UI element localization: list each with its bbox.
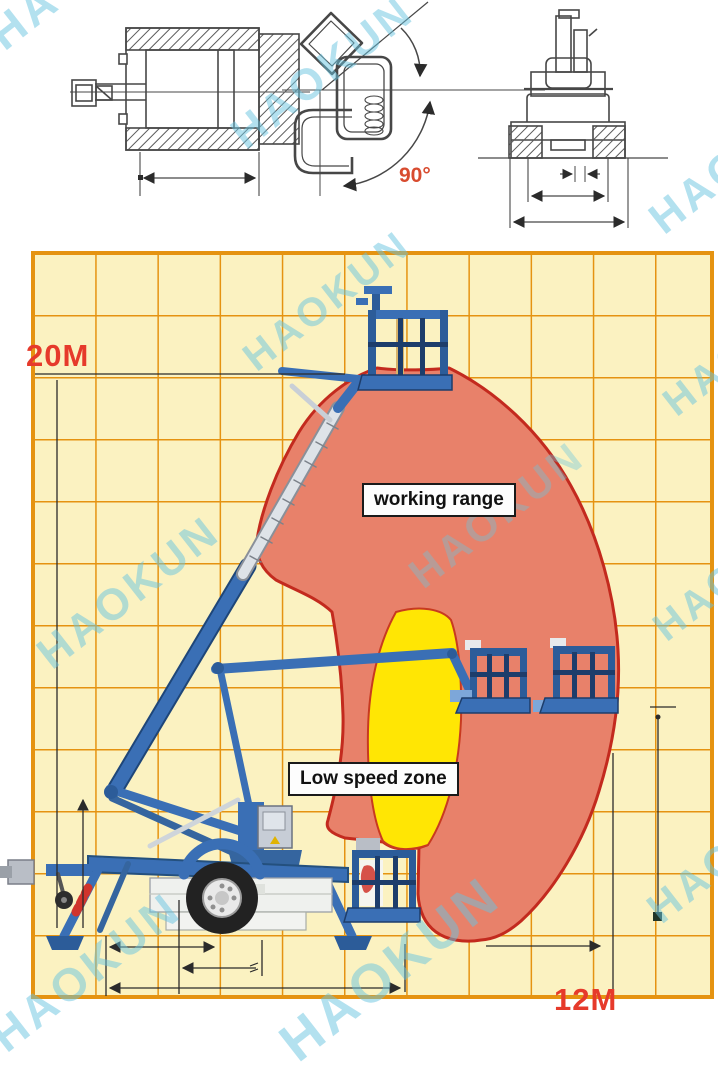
platform-basket-stowed	[344, 838, 420, 922]
low-speed-zone-label: Low speed zone	[288, 762, 459, 796]
rear-view-drawing	[478, 10, 668, 228]
rotation-angle-label: 90°	[399, 164, 431, 188]
working-range-label: working range	[362, 483, 516, 517]
working-range-diagram	[0, 0, 718, 1024]
max-height-label: 20M	[26, 338, 89, 374]
max-reach-label: 12M	[554, 982, 617, 1018]
plan-view-drawing	[70, 28, 310, 196]
